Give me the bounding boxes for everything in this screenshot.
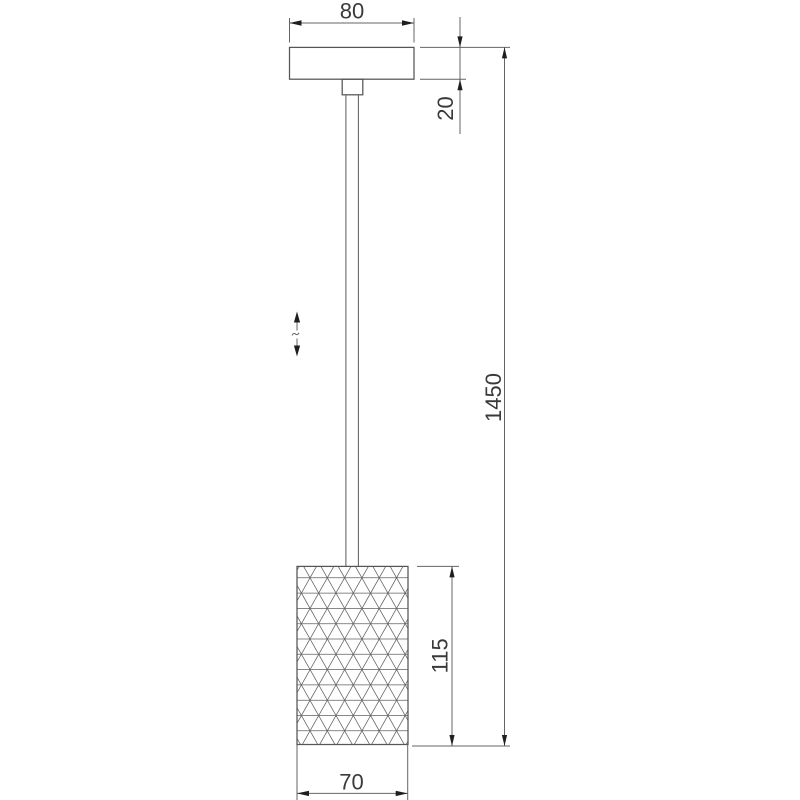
- svg-text:80: 80: [340, 0, 364, 24]
- svg-text:1450: 1450: [481, 373, 506, 422]
- svg-text:70: 70: [339, 769, 363, 794]
- svg-text:115: 115: [428, 638, 453, 673]
- svg-text:20: 20: [433, 96, 458, 120]
